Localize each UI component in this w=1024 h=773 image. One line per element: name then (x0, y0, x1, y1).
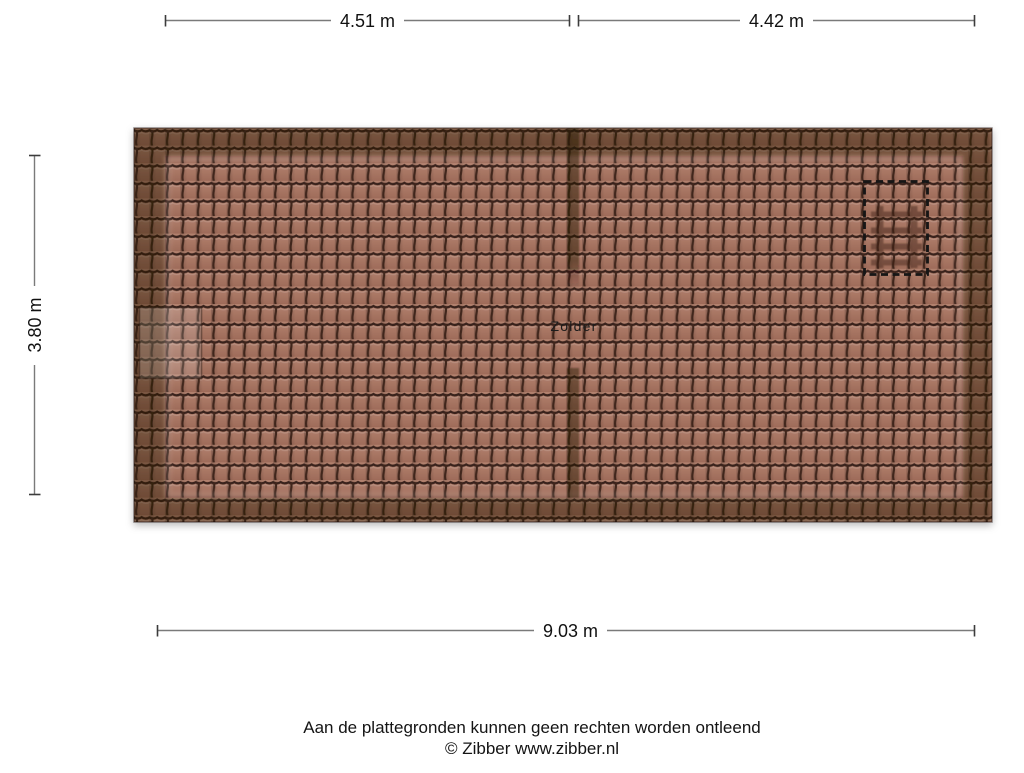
dimension-label-bottom: 9.03 m (543, 621, 598, 641)
dimension-top-left: 4.51 m (165, 11, 570, 31)
room-label: Zolder (551, 318, 598, 334)
attic-roof-plan: Zolder (134, 128, 992, 522)
footer: Aan de plattegronden kunnen geen rechten… (303, 718, 760, 758)
ridge-wall-upper (567, 128, 579, 290)
dimension-bottom: 9.03 m (157, 621, 975, 641)
ladder-rung (871, 244, 922, 250)
dimension-label-top-left: 4.51 m (340, 11, 395, 31)
disclaimer-text: Aan de plattegronden kunnen geen rechten… (303, 718, 760, 737)
side-window (140, 308, 202, 379)
dimension-left: 3.80 m (25, 155, 45, 495)
dimension-label-left: 3.80 m (25, 297, 45, 352)
ridge-wall-lower (567, 368, 579, 498)
ladder-rung (871, 228, 922, 234)
dimension-label-top-right: 4.42 m (749, 11, 804, 31)
ladder-rung (871, 260, 922, 266)
dimension-top-right: 4.42 m (578, 11, 975, 31)
attic-floorplan-canvas: Zolder 4.51 m 4.42 m 3.80 m (0, 0, 1024, 768)
ladder-rung (871, 212, 922, 218)
credit-text: © Zibber www.zibber.nl (445, 739, 619, 758)
